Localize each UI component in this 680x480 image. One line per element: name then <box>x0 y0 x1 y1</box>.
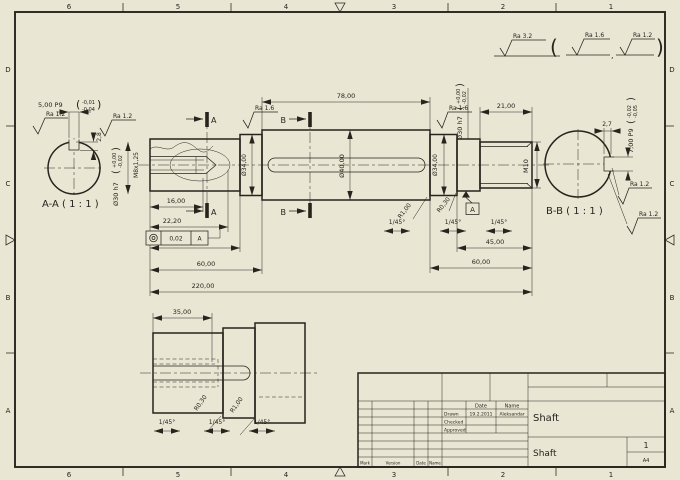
zone-top-5: 5 <box>176 3 180 11</box>
general-roughness-note: Ra 3.2 ( Ra 1.6 , Ra 1.2 ) <box>494 32 664 60</box>
dim-60-left: 60,00 <box>197 260 216 268</box>
alt-roughness-1: Ra 1.6 <box>585 32 604 39</box>
cut-label-a: A <box>211 208 217 217</box>
chamfer-note: 1/45° <box>445 219 461 226</box>
aa-roughness-right: Ra 1.2 <box>113 113 132 120</box>
surface-finish-icon <box>620 39 655 55</box>
tol-upper: -0,01 <box>82 100 95 106</box>
zone-top-1: 1 <box>609 3 613 11</box>
zone-left-d: D <box>5 66 10 74</box>
dim-dia34-left: Ø34,00 <box>241 154 248 176</box>
aa-roughness-left: Ra 1.2 <box>46 111 65 118</box>
surface-finish-icon <box>618 188 652 204</box>
chamfer-note: 1/45° <box>254 419 270 426</box>
tol-paren-open: ( <box>111 170 122 174</box>
radius-note-big: R1,00 <box>229 396 245 415</box>
tol-lower: -0,04 <box>82 107 95 113</box>
dim-thread-right: M10 <box>522 159 530 173</box>
zone-top-6: 6 <box>67 3 72 11</box>
bottom-header-mark: Mark <box>360 461 371 466</box>
drawing-sheet: 6 5 4 3 2 1 6 5 4 3 2 1 D C B A D C B A … <box>0 0 680 480</box>
radius-note-small: R0,30 <box>436 196 452 214</box>
dim-thread-length: 16,00 <box>167 197 186 205</box>
section-bb-view: 2,7 7,00 P9 ( -0,02 -0,05 ) Ra 1.2 Ra 1.… <box>543 97 661 234</box>
chamfer-note: 1/45° <box>491 219 507 226</box>
tol-lower: -0,02 <box>118 155 124 168</box>
bottom-header-date: Date <box>416 461 426 466</box>
dim-21: 21,00 <box>497 102 516 110</box>
zone-top-4: 4 <box>284 3 289 11</box>
surface-finish-icon <box>627 218 661 234</box>
shaft-drawing: 6 5 4 3 2 1 6 5 4 3 2 1 D C B A D C B A … <box>0 0 680 480</box>
zone-bottom-4: 4 <box>284 471 289 479</box>
center-arrow-top-icon <box>335 3 345 12</box>
row-label: Approved <box>444 428 466 434</box>
sheet-format: A4 <box>643 458 650 464</box>
surface-finish-icon <box>243 112 278 128</box>
detail-view: 35,00 R0,30 R1,00 1/45° 1/45° 1/45° <box>140 308 318 435</box>
dim-dia34-right: Ø34,00 <box>432 154 439 176</box>
dim-bb-keyway-depth: 2,7 <box>602 121 612 128</box>
row-label: Drawn <box>444 412 459 418</box>
zone-right-d: D <box>669 66 674 74</box>
zone-left-b: B <box>6 294 11 302</box>
section-aa-label: A-A ( 1 : 1 ) <box>42 199 99 210</box>
tol-paren-open: ( <box>626 120 637 124</box>
zone-top-3: 3 <box>392 3 396 11</box>
cut-label-b: B <box>281 208 287 217</box>
bottom-header-version: Version <box>386 461 401 466</box>
part-name: Shaft <box>533 449 557 459</box>
surface-finish-icon <box>437 112 472 128</box>
general-roughness-value: Ra 3.2 <box>513 33 532 40</box>
zone-left-a: A <box>6 407 11 415</box>
zone-bottom-2: 2 <box>501 471 505 479</box>
part-title: Shaft <box>533 413 559 424</box>
zone-top-2: 2 <box>501 3 505 11</box>
chamfer-note: 1/45° <box>159 419 175 426</box>
col-header-name: Name <box>505 404 520 410</box>
dim-bb-keyway-width: 7,00 P9 <box>627 128 635 153</box>
bb-roughness-lower: Ra 1.2 <box>639 211 658 218</box>
center-arrow-left-icon <box>6 235 15 245</box>
tol-paren-open: ( <box>76 98 80 111</box>
surface-finish-icon <box>33 118 68 134</box>
dim-78: 78,00 <box>337 92 356 100</box>
tol-paren-open: ( <box>455 106 466 110</box>
datum-a: A <box>462 191 479 215</box>
surface-finish-icon <box>500 40 546 56</box>
surface-finish-icon <box>572 39 610 55</box>
dim-dia40: Ø40,00 <box>338 154 346 178</box>
zone-bottom-5: 5 <box>176 471 180 479</box>
dim-total-length: 220,00 <box>192 282 215 290</box>
radius-note-big: R1,00 <box>397 202 413 220</box>
cut-label-a: A <box>211 116 217 125</box>
tol-paren-close: ) <box>97 98 101 111</box>
dim-keyway-width: 5,00 P9 <box>38 101 63 109</box>
tol-lower: -0,02 <box>462 91 468 104</box>
dim-aa-diameter: Ø30 h7 <box>112 182 120 206</box>
chamfer-note: 1/45° <box>209 419 225 426</box>
shaft-roughness-left: Ra 1.6 <box>255 105 274 112</box>
paren-close: ) <box>656 35 664 59</box>
section-bb-label: B-B ( 1 : 1 ) <box>546 206 603 217</box>
zone-right-a: A <box>670 407 675 415</box>
tol-lower: -0,05 <box>633 105 639 118</box>
sheet-frame <box>6 3 674 476</box>
dim-35: 35,00 <box>173 308 192 316</box>
dim-60-right: 60,00 <box>472 258 491 266</box>
break-line <box>150 143 213 152</box>
center-arrow-right-icon <box>665 235 674 245</box>
dim-45-right: 45,00 <box>486 238 505 246</box>
dim-thread-left: M8x1,25 <box>133 152 140 178</box>
alt-roughness-2: Ra 1.2 <box>633 32 652 39</box>
row-label: Checked <box>444 420 463 426</box>
row-name: Aleksandar <box>499 412 524 418</box>
tol-paren-close: ) <box>111 147 122 151</box>
radius-note-small: R0,30 <box>193 394 209 413</box>
title-block: Date Name Drawn 19.2.2011 Aleksandar Che… <box>358 373 665 467</box>
dim-hole-depth: 22,20 <box>163 217 182 225</box>
zone-bottom-1: 1 <box>609 471 613 479</box>
row-date: 19.2.2011 <box>470 412 493 418</box>
zone-right-b: B <box>670 294 675 302</box>
zone-right-c: C <box>670 180 675 188</box>
dim-keyway-depth: 2,8 <box>96 132 103 142</box>
zone-labels: 6 5 4 3 2 1 6 5 4 3 2 1 D C B A D C B A <box>5 3 674 479</box>
tol-paren-close: ) <box>626 97 637 101</box>
main-view: M8x1,25 A A B B Ra 1.6 Ra 1.6 16,00 22 <box>133 83 549 296</box>
tolerance-value: 0,02 <box>169 236 183 243</box>
dim-dia30: Ø30 h7 <box>456 116 464 140</box>
paren-open: ( <box>550 35 558 59</box>
comma: , <box>611 51 614 60</box>
zone-left-c: C <box>6 180 11 188</box>
center-arrow-bottom-icon <box>335 467 345 476</box>
tol-paren-close: ) <box>455 83 466 87</box>
datum-label: A <box>470 206 475 214</box>
cut-label-b: B <box>281 116 287 125</box>
bottom-header-name: Name <box>429 461 441 466</box>
zone-bottom-6: 6 <box>67 471 72 479</box>
tolerance-frame: 0,02 A <box>146 230 220 245</box>
col-header-date: Date <box>475 404 487 410</box>
sheet-number: 1 <box>643 441 648 450</box>
zone-bottom-3: 3 <box>392 471 396 479</box>
surface-finish-icon <box>100 120 136 136</box>
chamfer-note: 1/45° <box>389 219 405 226</box>
section-aa-view: 5,00 P9 ( -0,01 -0,04 ) 2,8 Ra 1.2 Ra 1.… <box>33 98 136 210</box>
centerline <box>543 129 613 199</box>
bb-roughness-upper: Ra 1.2 <box>630 181 649 188</box>
